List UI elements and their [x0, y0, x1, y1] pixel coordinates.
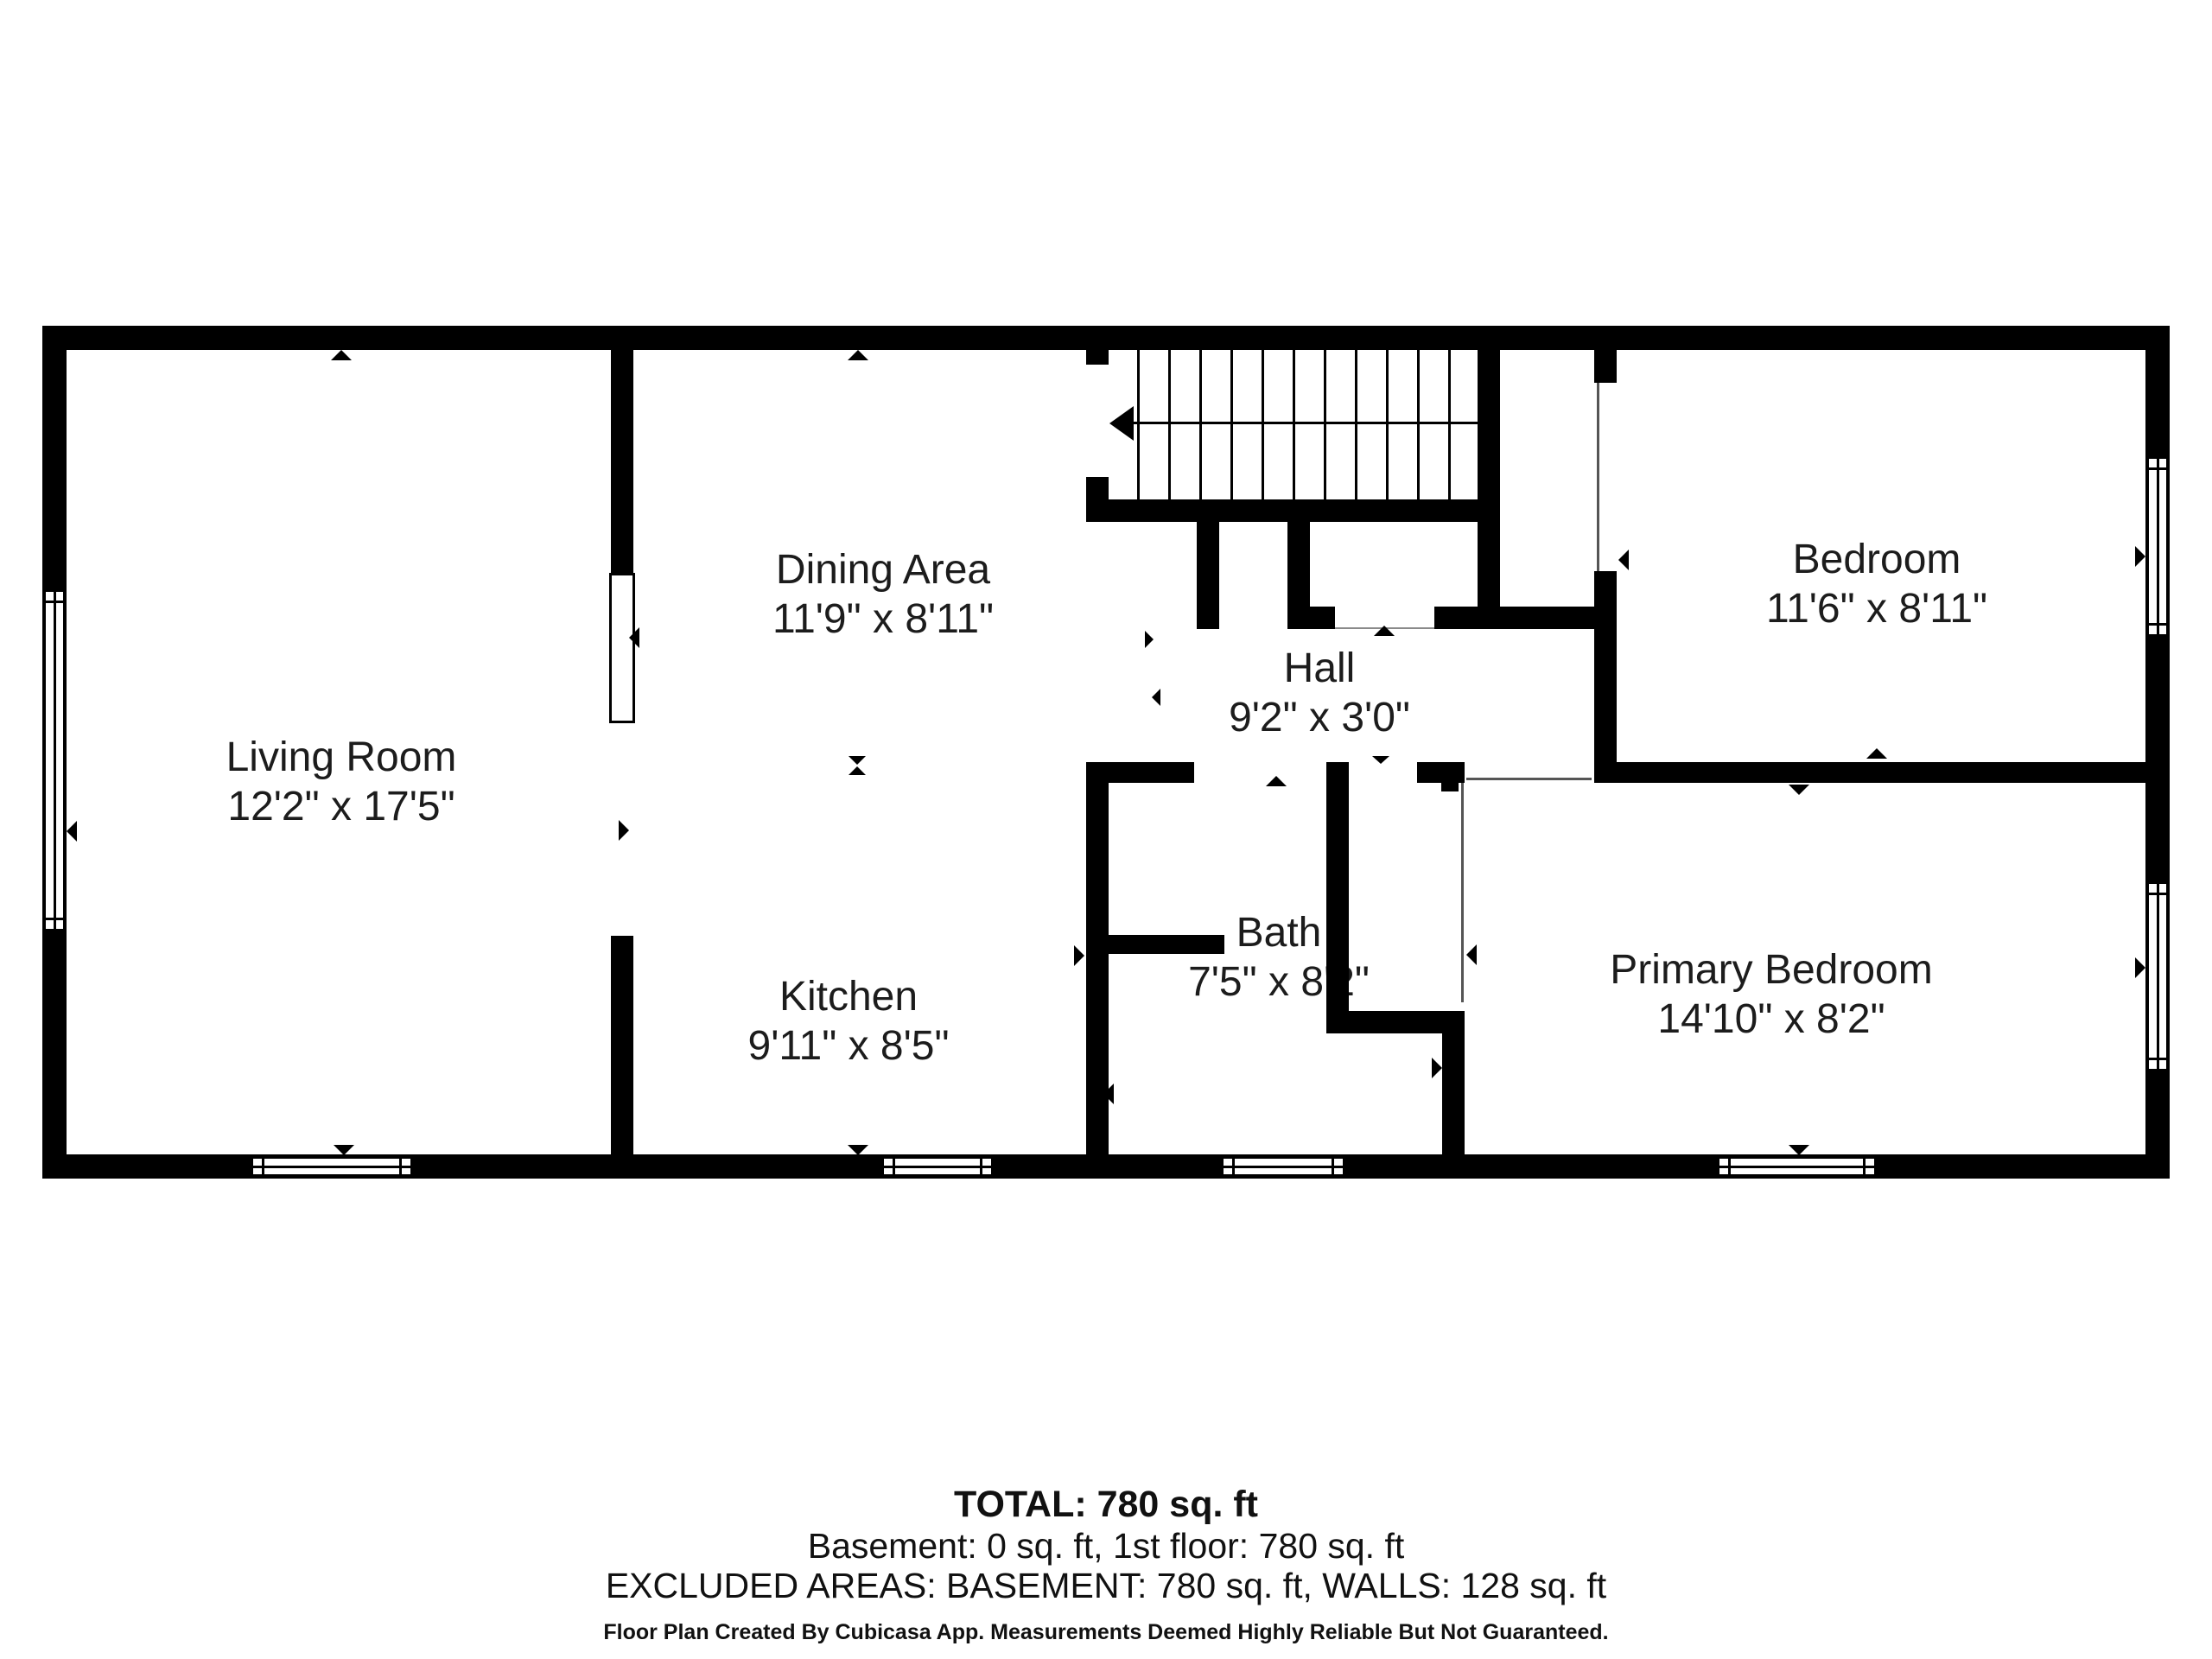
room-label-hall: Hall 9'2" x 3'0" — [1229, 644, 1410, 742]
wall-bedroom-primary-divider — [1594, 762, 2145, 783]
door-leaf-primary-horizontal — [1466, 778, 1592, 780]
wall-bedroom-left-bottom — [1594, 571, 1617, 783]
wall-stair-left-top-stub — [1086, 350, 1109, 365]
interior-window-pass-through — [609, 573, 635, 723]
room-name: Dining Area — [772, 545, 994, 594]
wall-bedroom-left-top — [1594, 350, 1617, 383]
door-marker-living-top — [331, 350, 352, 360]
window-bath-bottom — [1221, 1156, 1345, 1177]
door-marker-primary-entry — [1466, 944, 1477, 965]
wall-outer-top — [42, 326, 2170, 350]
door-marker-living-window — [67, 821, 77, 842]
room-dimensions: 11'9" x 8'11" — [772, 594, 994, 644]
door-marker-divider-opening — [619, 820, 629, 841]
window-marker-bedroom-right — [2135, 546, 2145, 567]
door-marker-hall-left-right — [1145, 631, 1154, 648]
floor-plan-page: Living Room 12'2" x 17'5" Dining Area 11… — [0, 0, 2212, 1659]
door-marker-bath-inner — [1103, 1084, 1114, 1104]
room-dimensions: 9'2" x 3'0" — [1229, 693, 1410, 742]
window-primary-right — [2146, 881, 2169, 1071]
disclaimer-text: Floor Plan Created By Cubicasa App. Meas… — [0, 1619, 2212, 1645]
door-leaf-bedroom — [1597, 383, 1599, 571]
wall-hall-top-right — [1434, 607, 1617, 629]
door-marker-bedroom-entry — [1618, 550, 1629, 570]
wall-bath-half — [1102, 935, 1224, 954]
room-name: Hall — [1229, 644, 1410, 693]
room-label-primary: Primary Bedroom 14'10" x 8'2" — [1610, 945, 1932, 1044]
door-marker-primary-bottom — [1789, 1145, 1809, 1155]
room-label-living: Living Room 12'2" x 17'5" — [226, 733, 457, 831]
floor-areas-text: Basement: 0 sq. ft, 1st floor: 780 sq. f… — [0, 1526, 2212, 1566]
door-marker-understair — [1374, 626, 1395, 636]
window-primary-bottom — [1717, 1156, 1877, 1177]
window-living-bottom — [251, 1156, 413, 1177]
staircase-treads — [1109, 350, 1478, 501]
room-dimensions: 12'2" x 17'5" — [226, 782, 457, 831]
room-name: Living Room — [226, 733, 457, 782]
wall-understair-stub-foot — [1310, 607, 1335, 629]
wall-stair-bottom — [1086, 499, 1500, 522]
room-name: Bedroom — [1766, 535, 1987, 584]
door-marker-hall-left-left — [1152, 689, 1160, 706]
total-area-text: TOTAL: 780 sq. ft — [0, 1483, 2212, 1526]
area-summary: TOTAL: 780 sq. ft Basement: 0 sq. ft, 1s… — [0, 1483, 2212, 1645]
room-name: Primary Bedroom — [1610, 945, 1932, 995]
window-bedroom-right — [2146, 456, 2169, 637]
wall-understair-stub-b — [1287, 522, 1310, 629]
staircase-run-line — [1122, 422, 1478, 424]
room-dimensions: 11'6" x 8'11" — [1766, 584, 1987, 633]
window-marker-primary-right — [2135, 957, 2145, 978]
door-marker-living-bottom — [334, 1145, 354, 1155]
door-marker-divider-window — [629, 627, 639, 648]
door-marker-primary-top — [1789, 785, 1809, 795]
staircase-direction-arrow — [1109, 406, 1134, 441]
door-marker-kitchen-side — [1074, 945, 1084, 966]
room-label-bedroom: Bedroom 11'6" x 8'11" — [1766, 535, 1987, 633]
door-marker-dining-top — [848, 350, 868, 360]
wall-toilet-right — [1442, 1011, 1465, 1154]
room-dimensions: 14'10" x 8'2" — [1610, 995, 1932, 1044]
window-kitchen-bottom — [881, 1156, 994, 1177]
room-dimensions: 9'11" x 8'5" — [748, 1021, 950, 1071]
wall-hall-bottom-seg — [1417, 762, 1465, 783]
door-marker-bedroom-bottom — [1866, 748, 1887, 759]
flow-marker-dining-up — [849, 766, 866, 775]
wall-bath-right — [1326, 762, 1349, 1033]
wall-divider-upper — [611, 350, 633, 573]
door-marker-bath-door-up — [1266, 776, 1287, 786]
wall-understair-stub-a — [1197, 522, 1219, 629]
room-label-kitchen: Kitchen 9'11" x 8'5" — [748, 972, 950, 1071]
door-marker-toilet-entry — [1432, 1058, 1442, 1078]
flow-marker-dining-down — [849, 756, 866, 765]
wall-stair-right — [1478, 350, 1500, 629]
door-leaf-primary-vertical — [1461, 780, 1464, 1002]
room-name: Kitchen — [748, 972, 950, 1021]
excluded-areas-text: EXCLUDED AREAS: BASEMENT: 780 sq. ft, WA… — [0, 1566, 2212, 1605]
wall-divider-lower — [611, 936, 633, 1154]
wall-hall-bottom-stub — [1441, 783, 1459, 791]
door-marker-kitchen-bottom — [848, 1145, 868, 1155]
room-label-dining: Dining Area 11'9" x 8'11" — [772, 545, 994, 644]
window-living-left — [43, 589, 66, 931]
wall-bath-top — [1086, 762, 1194, 783]
door-marker-toilet-down — [1372, 756, 1389, 764]
